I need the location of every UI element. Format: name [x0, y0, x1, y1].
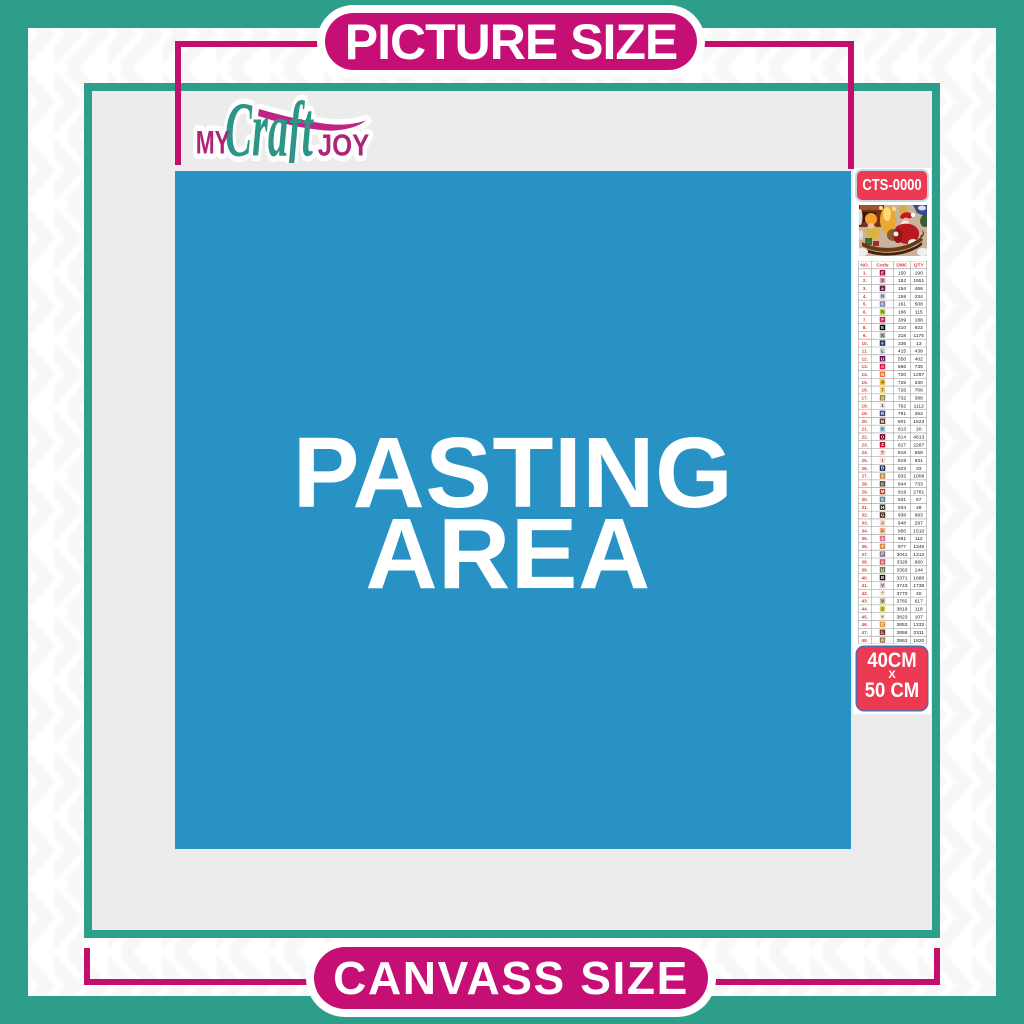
svg-text:19.: 19.: [862, 411, 868, 416]
svg-text:48: 48: [916, 505, 922, 511]
svg-text:252: 252: [915, 411, 923, 417]
svg-text:T: T: [881, 544, 884, 549]
svg-text:7.: 7.: [863, 317, 867, 322]
svg-text:37.: 37.: [862, 552, 868, 557]
svg-text:3823: 3823: [897, 614, 908, 620]
svg-text:47.: 47.: [862, 630, 868, 635]
svg-text:931: 931: [898, 497, 906, 503]
svg-text:791: 791: [898, 411, 906, 417]
svg-text:977: 977: [898, 544, 906, 550]
svg-text:46.: 46.: [862, 622, 868, 627]
svg-text:38.: 38.: [862, 560, 868, 565]
svg-text:31.: 31.: [862, 505, 868, 510]
svg-text:A: A: [881, 380, 884, 385]
svg-text:438: 438: [915, 349, 923, 355]
svg-text:13: 13: [916, 341, 922, 347]
svg-text:115: 115: [915, 310, 923, 316]
svg-text:6.: 6.: [863, 310, 867, 315]
svg-text:726: 726: [898, 388, 906, 394]
svg-text:Code: Code: [876, 263, 889, 269]
svg-text:30.: 30.: [862, 497, 868, 502]
svg-text:817: 817: [898, 442, 906, 448]
svg-text:8.: 8.: [863, 325, 867, 330]
svg-text:188: 188: [915, 317, 923, 323]
svg-text:832: 832: [898, 474, 906, 480]
svg-text:1312: 1312: [913, 552, 924, 558]
svg-text:3782: 3782: [897, 599, 908, 605]
svg-text:666: 666: [898, 364, 906, 370]
svg-text:823: 823: [898, 466, 906, 472]
svg-text:819: 819: [898, 458, 906, 464]
svg-text:1551: 1551: [913, 278, 924, 284]
svg-text:3819: 3819: [897, 607, 908, 613]
svg-text:150: 150: [898, 270, 906, 276]
svg-text:2781: 2781: [913, 489, 924, 495]
svg-text:919: 919: [898, 489, 906, 495]
svg-text:190: 190: [915, 270, 923, 276]
svg-text:154: 154: [898, 286, 906, 292]
svg-text:1175: 1175: [913, 333, 924, 339]
svg-text:733: 733: [915, 481, 923, 487]
svg-text:22.: 22.: [862, 435, 868, 440]
svg-text:813: 813: [898, 427, 906, 433]
svg-text:43.: 43.: [862, 599, 868, 604]
svg-text:844: 844: [898, 481, 906, 487]
svg-text:725: 725: [898, 380, 906, 386]
svg-text:309: 309: [898, 317, 906, 323]
svg-text:DMC: DMC: [896, 263, 908, 269]
svg-text:34.: 34.: [862, 528, 868, 533]
svg-text:16.: 16.: [862, 388, 868, 393]
svg-text:950: 950: [898, 528, 906, 534]
svg-text:H: H: [881, 505, 884, 510]
svg-text:B: B: [881, 419, 884, 424]
svg-text:2.: 2.: [863, 278, 867, 283]
svg-text:S: S: [881, 395, 884, 400]
svg-text:h: h: [881, 309, 884, 314]
svg-text:35.: 35.: [862, 536, 868, 541]
svg-text:18.: 18.: [862, 403, 868, 408]
svg-text:28.: 28.: [862, 481, 868, 486]
svg-text:1510: 1510: [913, 528, 924, 534]
svg-text:3858: 3858: [897, 630, 908, 636]
svg-text:706: 706: [915, 388, 923, 394]
svg-text:3.: 3.: [863, 286, 867, 291]
svg-text:1523: 1523: [913, 419, 924, 425]
svg-text:720: 720: [898, 372, 906, 378]
svg-text:25.: 25.: [862, 458, 868, 463]
svg-text:1738: 1738: [913, 583, 924, 589]
svg-text:14.: 14.: [862, 372, 868, 377]
svg-text:310: 310: [898, 325, 906, 331]
svg-text:568: 568: [915, 450, 923, 456]
svg-text:318: 318: [898, 333, 906, 339]
svg-text:A: A: [881, 638, 884, 643]
svg-text:N: N: [881, 372, 884, 377]
svg-text:119: 119: [915, 607, 923, 613]
svg-text:o: o: [881, 364, 884, 369]
svg-text:5.: 5.: [863, 302, 867, 307]
svg-text:NO.: NO.: [860, 263, 869, 269]
svg-text:818: 818: [898, 450, 906, 456]
svg-text:17.: 17.: [862, 395, 868, 400]
svg-text:E: E: [881, 270, 884, 275]
svg-text:993: 993: [915, 513, 923, 519]
svg-text:617: 617: [915, 599, 923, 605]
svg-text:44.: 44.: [862, 607, 868, 612]
svg-text:26.: 26.: [862, 466, 868, 471]
svg-text:L: L: [881, 630, 884, 635]
svg-text:159: 159: [898, 294, 906, 300]
svg-text:144: 144: [915, 567, 923, 573]
svg-text:N: N: [881, 294, 884, 299]
svg-text:1680: 1680: [913, 575, 924, 581]
svg-text:3853: 3853: [897, 622, 908, 628]
svg-text:1332: 1332: [913, 622, 924, 628]
svg-text:Y: Y: [881, 583, 884, 588]
svg-text:B: B: [881, 466, 884, 471]
svg-text:10.: 10.: [862, 341, 868, 346]
svg-text:42.: 42.: [862, 591, 868, 596]
svg-text:9.: 9.: [863, 333, 867, 338]
svg-text:P: P: [881, 552, 884, 557]
svg-text:67: 67: [916, 497, 922, 503]
svg-text:3863: 3863: [897, 638, 908, 644]
svg-text:33.: 33.: [862, 521, 868, 526]
svg-text:F: F: [881, 317, 884, 322]
svg-text:11.: 11.: [862, 349, 868, 354]
svg-text:466: 466: [915, 286, 923, 292]
svg-text:107: 107: [915, 614, 923, 620]
svg-text:508: 508: [915, 302, 923, 308]
svg-text:3041: 3041: [897, 552, 908, 558]
svg-text:MY: MY: [196, 125, 230, 161]
svg-text:15.: 15.: [862, 380, 868, 385]
svg-text:948: 948: [898, 521, 906, 527]
svg-text:922: 922: [915, 325, 923, 331]
svg-text:938: 938: [898, 513, 906, 519]
svg-text:12.: 12.: [862, 356, 868, 361]
svg-text:3743: 3743: [897, 583, 908, 589]
svg-text:24.: 24.: [862, 450, 868, 455]
svg-text:45.: 45.: [862, 614, 868, 619]
svg-text:402: 402: [915, 356, 923, 362]
svg-text:20: 20: [916, 427, 922, 433]
svg-text:20.: 20.: [862, 419, 868, 424]
svg-text:2311: 2311: [913, 630, 924, 636]
svg-text:4613: 4613: [913, 435, 924, 441]
svg-text:C: C: [881, 622, 884, 627]
svg-text:732: 732: [898, 395, 906, 401]
svg-text:388: 388: [915, 395, 923, 401]
svg-text:3328: 3328: [897, 560, 908, 566]
svg-text:814: 814: [898, 435, 906, 441]
svg-text:X: X: [881, 333, 884, 338]
svg-text:M: M: [881, 489, 885, 494]
svg-text:3363: 3363: [897, 567, 908, 573]
svg-text:23.: 23.: [862, 442, 868, 447]
svg-text:40.: 40.: [862, 575, 868, 580]
svg-text:1008: 1008: [913, 474, 924, 480]
svg-text:JOY: JOY: [318, 128, 369, 163]
svg-text:3371: 3371: [897, 575, 908, 581]
svg-text:234: 234: [915, 294, 923, 300]
svg-text:36.: 36.: [862, 544, 868, 549]
svg-text:L: L: [881, 348, 884, 353]
svg-text:961: 961: [898, 536, 906, 542]
svg-text:Z: Z: [881, 442, 884, 447]
svg-text:39.: 39.: [862, 567, 868, 572]
svg-text:2287: 2287: [913, 442, 924, 448]
svg-text:48.: 48.: [862, 638, 868, 643]
svg-text:336: 336: [898, 341, 906, 347]
svg-text:934: 934: [898, 505, 906, 511]
svg-text:B: B: [881, 575, 884, 580]
svg-text:297: 297: [915, 521, 923, 527]
svg-text:550: 550: [898, 356, 906, 362]
svg-text:1820: 1820: [913, 638, 924, 644]
svg-text:Craft: Craft: [225, 92, 314, 163]
svg-text:1346: 1346: [913, 544, 924, 550]
svg-text:1.: 1.: [863, 270, 867, 275]
svg-text:161: 161: [898, 302, 906, 308]
svg-text:QTY: QTY: [914, 263, 925, 269]
svg-text:1297: 1297: [913, 372, 924, 378]
svg-text:33: 33: [916, 466, 922, 472]
svg-text:V: V: [881, 599, 884, 604]
svg-text:931: 931: [915, 458, 923, 464]
svg-text:112: 112: [915, 536, 923, 542]
svg-text:415: 415: [898, 349, 906, 355]
svg-text:U: U: [881, 567, 884, 572]
svg-text:U: U: [881, 356, 884, 361]
svg-text:801: 801: [898, 419, 906, 425]
svg-text:330: 330: [915, 380, 923, 386]
svg-text:40: 40: [916, 591, 922, 597]
svg-text:152: 152: [898, 278, 906, 284]
svg-text:13.: 13.: [862, 364, 868, 369]
svg-text:32.: 32.: [862, 513, 868, 518]
svg-text:735: 735: [915, 364, 923, 370]
svg-text:41.: 41.: [862, 583, 868, 588]
svg-text:166: 166: [898, 310, 906, 316]
svg-text:21.: 21.: [862, 427, 868, 432]
svg-text:1112: 1112: [914, 403, 924, 409]
svg-text:762: 762: [898, 403, 906, 409]
svg-text:3770: 3770: [897, 591, 908, 597]
svg-text:E: E: [881, 325, 884, 330]
svg-text:29.: 29.: [862, 489, 868, 494]
svg-text:660: 660: [915, 560, 923, 566]
svg-text:27.: 27.: [862, 474, 868, 479]
svg-text:4.: 4.: [863, 294, 867, 299]
